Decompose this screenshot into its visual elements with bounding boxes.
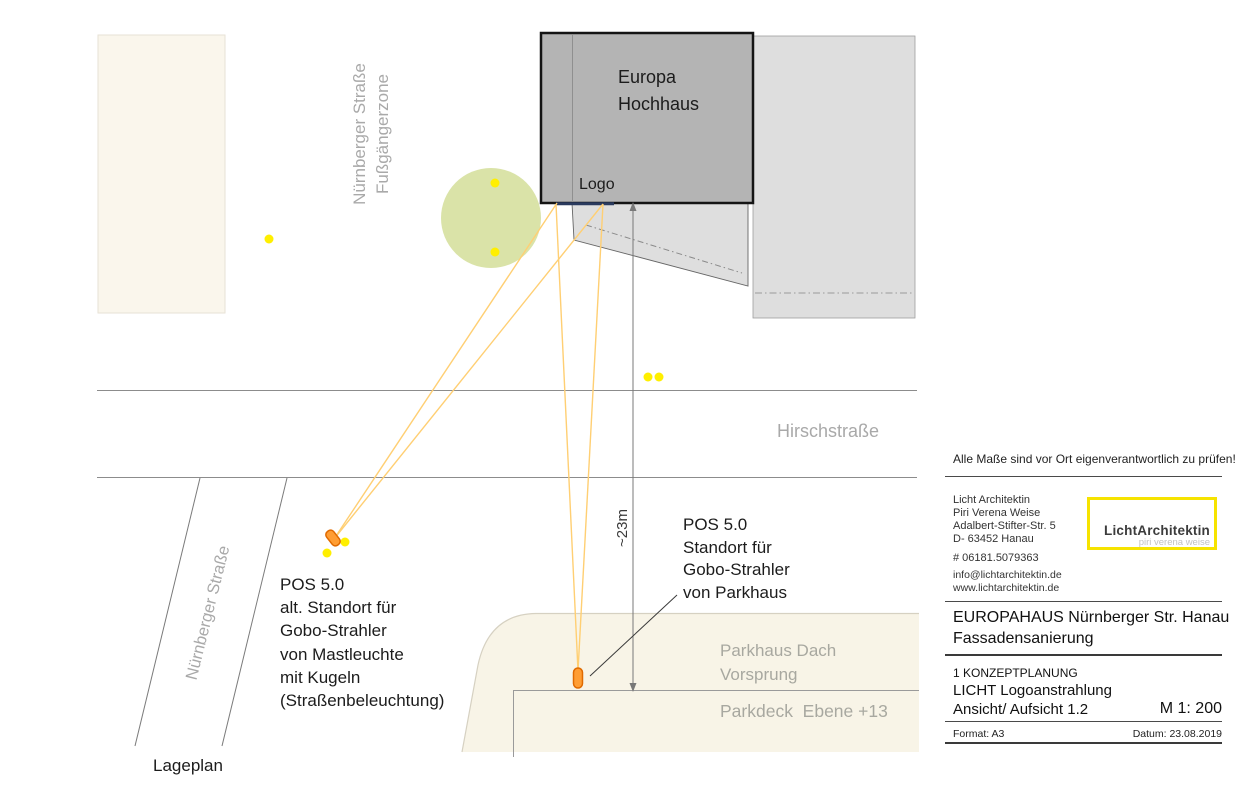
logo-box: LichtArchitektin piri verena weise <box>1087 497 1217 550</box>
logo-name: LichtArchitektin <box>1104 523 1210 538</box>
light-point-dot <box>323 549 332 558</box>
pos-parkhaus-line2: Standort für <box>683 537 790 560</box>
light-beam-line <box>578 204 603 671</box>
drawing-scale: M 1: 200 <box>1120 700 1222 718</box>
architect-person: Piri Verena Weise <box>953 507 1056 520</box>
parkhaus-roof-area <box>462 613 919 752</box>
lageplan-sheet: Europa Hochhaus Logo Nürnberger Straße F… <box>0 0 1240 800</box>
light-beam-line <box>556 204 578 671</box>
parkdeck-label: Parkdeck Ebene +13 <box>720 701 888 722</box>
plan-caption: Lageplan <box>153 756 223 776</box>
hirschstrasse-label: Hirschstraße <box>777 421 879 442</box>
light-point-dot <box>265 235 274 244</box>
light-point-dot <box>491 179 500 188</box>
light-point-dot <box>341 538 350 547</box>
pos-alt-note: POS 5.0 alt. Standort für Gobo-Strahler … <box>280 573 444 712</box>
titleblock-rule <box>945 601 1222 602</box>
architect-phone: # 06181.5079363 <box>953 552 1039 564</box>
project-line1: EUROPAHAUS Nürnberger Str. Hanau <box>953 608 1229 629</box>
building-lower-wing <box>572 203 748 286</box>
pos-alt-line3: Gobo-Strahler <box>280 619 444 642</box>
titleblock-rule <box>945 476 1222 477</box>
gobo-fixture-parkhaus <box>574 668 583 688</box>
parkhaus-roof-line2: Vorsprung <box>720 663 836 687</box>
building-light-wing <box>753 36 915 318</box>
pos-alt-line1: POS 5.0 <box>280 573 444 596</box>
architect-email: info@lichtarchitektin.de <box>953 569 1062 582</box>
drawing-phase: 1 KONZEPTPLANUNG <box>953 666 1078 680</box>
drawing-subtitle: Ansicht/ Aufsicht 1.2 <box>953 701 1088 718</box>
building-name-line1: Europa <box>618 64 699 91</box>
architect-name: Licht Architektin <box>953 494 1056 507</box>
architect-address: Licht Architektin Piri Verena Weise Adal… <box>953 494 1056 546</box>
pedestrian-zone-line1: Nürnberger Straße <box>348 49 371 219</box>
building-name-label: Europa Hochhaus <box>618 64 699 118</box>
pos-alt-line6: (Straßenbeleuchtung) <box>280 689 444 712</box>
light-point-dot <box>655 373 664 382</box>
logo-tagline: piri verena weise <box>1139 537 1210 548</box>
pos-alt-line4: von Mastleuchte <box>280 643 444 666</box>
light-point-dot <box>491 248 500 257</box>
parkhaus-roof-line1: Parkhaus Dach <box>720 639 836 663</box>
pos-parkhaus-line4: von Parkhaus <box>683 582 790 605</box>
architect-city: D- 63452 Hanau <box>953 533 1056 546</box>
logo-label: Logo <box>579 176 615 194</box>
road-edge-line-left <box>135 478 200 746</box>
titleblock-rule <box>945 742 1222 744</box>
pos-parkhaus-line3: Gobo-Strahler <box>683 559 790 582</box>
drawing-title: LICHT Logoanstrahlung <box>953 682 1112 699</box>
pos-alt-line2: alt. Standort für <box>280 596 444 619</box>
road-edge-line-right <box>222 478 287 746</box>
sheet-date: Datum: 23.08.2019 <box>1090 728 1222 740</box>
light-point-dot <box>644 373 653 382</box>
parkhaus-roof-label: Parkhaus Dach Vorsprung <box>720 639 836 686</box>
sheet-format: Format: A3 <box>953 728 1004 740</box>
pos-parkhaus-note: POS 5.0 Standort für Gobo-Strahler von P… <box>683 514 790 604</box>
titleblock-notice: Alle Maße sind vor Ort eigenverantwortli… <box>953 452 1236 466</box>
pedestrian-area-shape <box>98 35 225 313</box>
light-beam-line <box>334 203 557 539</box>
architect-street: Adalbert-Stifter-Str. 5 <box>953 520 1056 533</box>
dimension-label: ~23m <box>614 496 632 560</box>
titleblock-rule <box>945 721 1222 722</box>
architect-contact: info@lichtarchitektin.de www.lichtarchit… <box>953 569 1062 594</box>
pos-parkhaus-line1: POS 5.0 <box>683 514 790 537</box>
project-title: EUROPAHAUS Nürnberger Str. Hanau Fassade… <box>953 608 1229 649</box>
titleblock-rule <box>945 654 1222 656</box>
project-line2: Fassadensanierung <box>953 629 1229 650</box>
pos-alt-line5: mit Kugeln <box>280 666 444 689</box>
pedestrian-zone-label: Nürnberger Straße Fußgängerzone <box>348 49 394 219</box>
pedestrian-zone-line2: Fußgängerzone <box>371 49 394 219</box>
building-name-line2: Hochhaus <box>618 91 699 118</box>
architect-website: www.lichtarchitektin.de <box>953 582 1062 595</box>
